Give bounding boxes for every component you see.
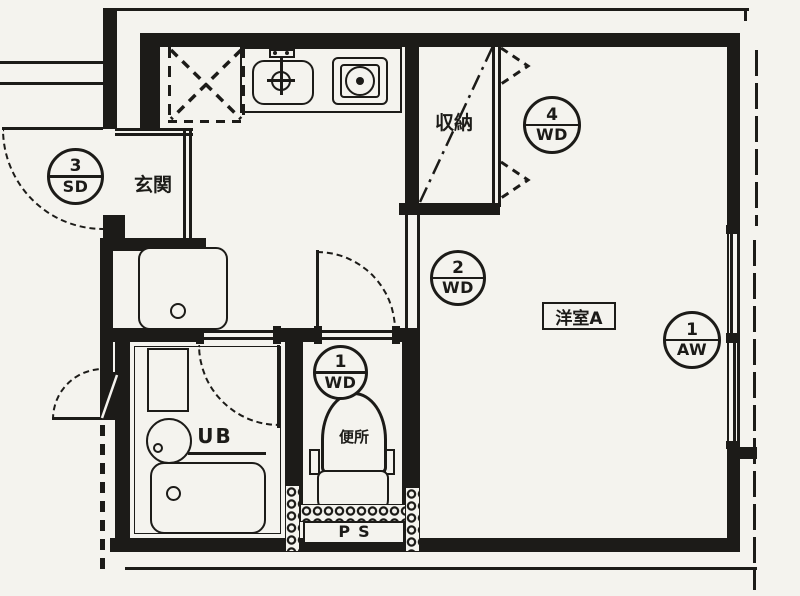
genkan-east-line [189,128,192,240]
wall-closet-west [405,43,419,215]
closet-east-line [492,47,495,207]
drain-cross-h [267,79,295,82]
wall-right-upper [727,47,740,227]
wall-toilet-east [405,340,420,487]
room-doorway-post [399,203,407,215]
opening-number: 3 [70,157,82,175]
opening-code: WD [536,126,568,144]
wall-hall-south-b [277,328,318,342]
washbasin [146,418,192,464]
wall-ub-west [115,330,130,552]
outline-bottom [125,567,757,570]
stove-burner-dot [356,77,364,85]
washbasin-drain [153,443,163,453]
opening-code: WD [325,374,357,392]
opening-ref-wd2: 2 WD [430,250,486,306]
fridge-space-edge [242,47,245,123]
meter-door-swing [52,368,103,419]
opening-ref-wd4: 4 WD [523,96,581,154]
toilet-door-threshold [318,330,396,333]
window-mullion [726,225,740,234]
ub-door-threshold [200,330,277,333]
faucet-dot [273,51,277,55]
door-post [273,326,281,344]
opening-ref-aw1: 1 AW [663,311,721,369]
wall-closet-south [405,203,500,215]
window-mullion [726,441,740,449]
neighbor-boundary-dashed [100,425,105,577]
closet-label: 収納 [424,108,484,134]
closet-east-line [498,47,501,207]
toilet-door-threshold [318,337,396,340]
toilet-inner-line [300,342,303,506]
ps-hatch-left [285,485,300,552]
opening-ref-wd1: 1 WD [313,345,368,400]
ps-label: PS [303,521,405,542]
opening-number: 1 [686,321,698,339]
opening-number: 1 [335,353,347,371]
opening-code: AW [677,341,707,359]
outline-top [103,8,749,11]
ub-label: UB [192,424,238,448]
window-mullion [726,333,740,343]
wall-top-main [140,33,740,47]
wall-right-step [740,447,757,459]
fridge-space-edge [168,47,171,123]
genkan-north-line [115,128,193,131]
balcony-boundary-dashed-upper [755,50,758,226]
ub-partition-line [188,452,266,455]
balcony-edge-line [753,240,756,590]
wall-ub-toilet-divider [285,342,300,485]
opening-number: 4 [546,106,558,124]
window-sash [730,231,733,336]
opening-number: 2 [452,259,464,277]
washer-pan-drain [170,303,186,319]
ps-hatch-top [300,504,420,522]
washer-pan [138,247,228,330]
corridor-line-2 [0,82,103,85]
window-sash [733,338,736,445]
wall-bottom-main [110,538,740,552]
floor-plan: UB 便所 PS 玄関 収納 洋室A 3 SD 4 WD 2 WD 1 WD 1… [0,0,800,596]
ub-vanity [147,348,189,412]
opening-code: SD [63,178,89,196]
bathtub-drain [166,486,181,501]
toilet-door-swing [317,251,396,330]
wall-hall-south-a [100,328,200,342]
opening-code: WD [442,279,474,297]
opening-ref-sd3: 3 SD [47,148,104,205]
room-doorway-frame [417,215,420,340]
outline-top-tick [744,8,747,21]
corridor-line-1 [0,61,103,64]
genkan-north-line [115,133,193,136]
western-room-label: 洋室A [542,302,616,330]
toilet-label: 便所 [325,426,383,446]
wall-left-mid [100,240,113,374]
fridge-space-edge [168,120,245,123]
wall-kitchen-west [140,33,160,128]
toilet-inner-line [402,342,405,506]
wall-right-lower [727,447,740,542]
ps-hatch-right [405,487,420,552]
toilet-side-tab [309,449,320,475]
ub-door-threshold [200,337,277,340]
faucet-dot [285,51,289,55]
entrance-label: 玄関 [122,170,184,196]
room-doorway-frame [405,215,408,340]
wall-left-outer [103,10,117,129]
